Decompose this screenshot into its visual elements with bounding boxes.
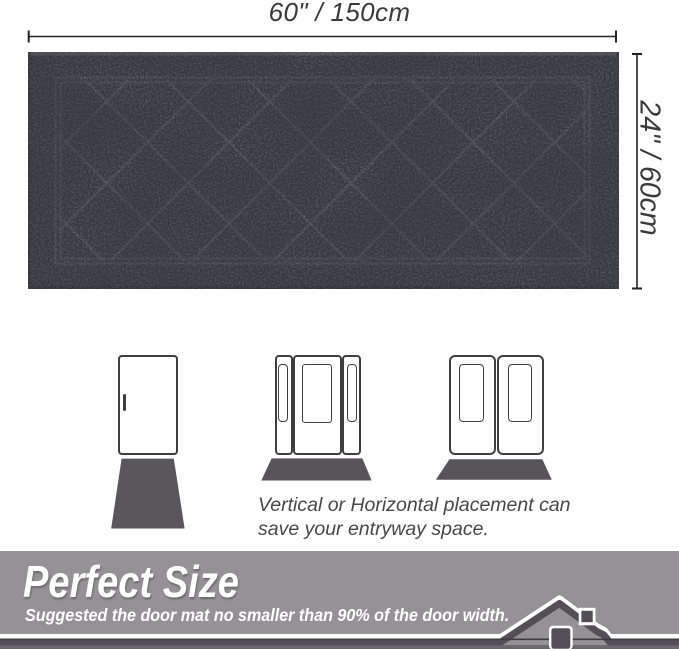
- svg-text:24" / 60cm: 24" / 60cm: [634, 99, 666, 235]
